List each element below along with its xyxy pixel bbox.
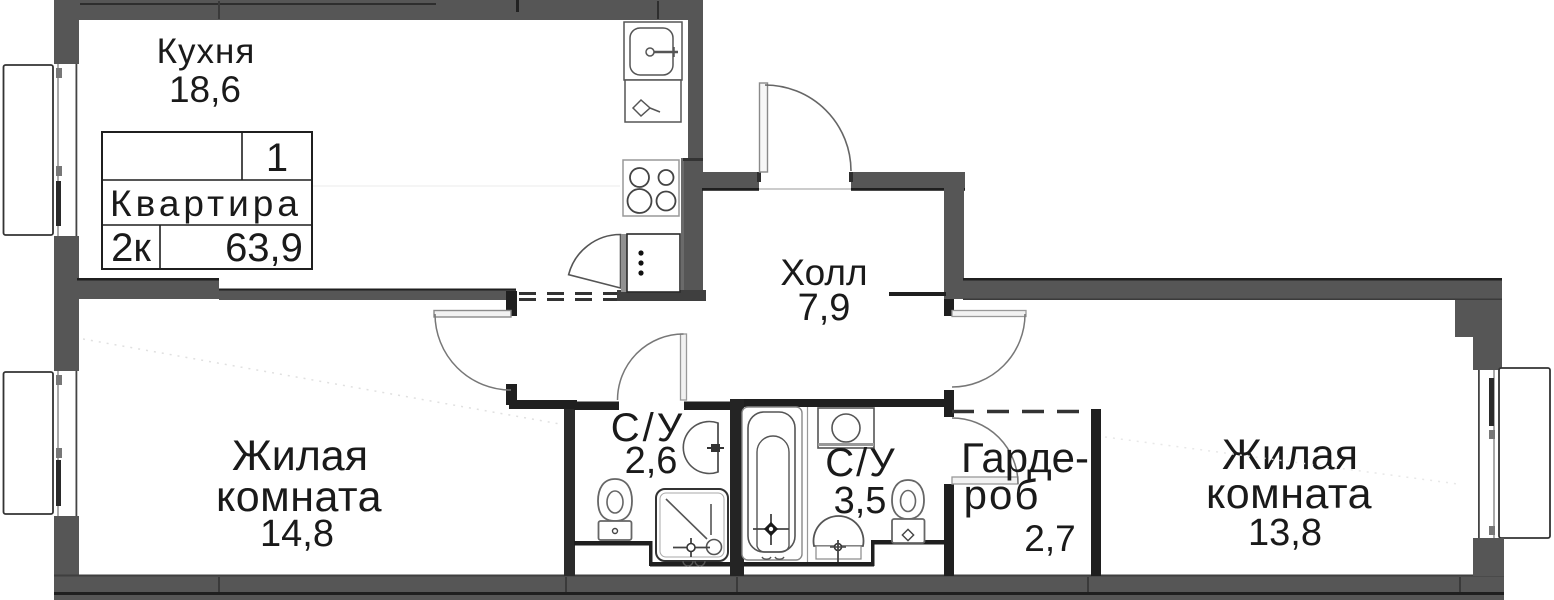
svg-text:1: 1 [266,136,288,180]
svg-text:комната: комната [1206,470,1372,518]
svg-text:7,9: 7,9 [798,287,851,329]
svg-text:14,8: 14,8 [260,513,334,555]
svg-text:2к: 2к [111,226,151,270]
svg-text:18,6: 18,6 [169,69,241,110]
svg-text:2,6: 2,6 [625,440,678,482]
svg-text:роб: роб [964,471,1041,518]
svg-text:63,9: 63,9 [225,226,303,270]
svg-text:С/У: С/У [825,441,896,485]
svg-text:Кухня: Кухня [157,32,256,71]
svg-text:Квартира: Квартира [110,183,302,224]
svg-text:13,8: 13,8 [1248,512,1322,554]
svg-text:3,5: 3,5 [834,480,887,522]
svg-text:2,7: 2,7 [1024,518,1075,559]
